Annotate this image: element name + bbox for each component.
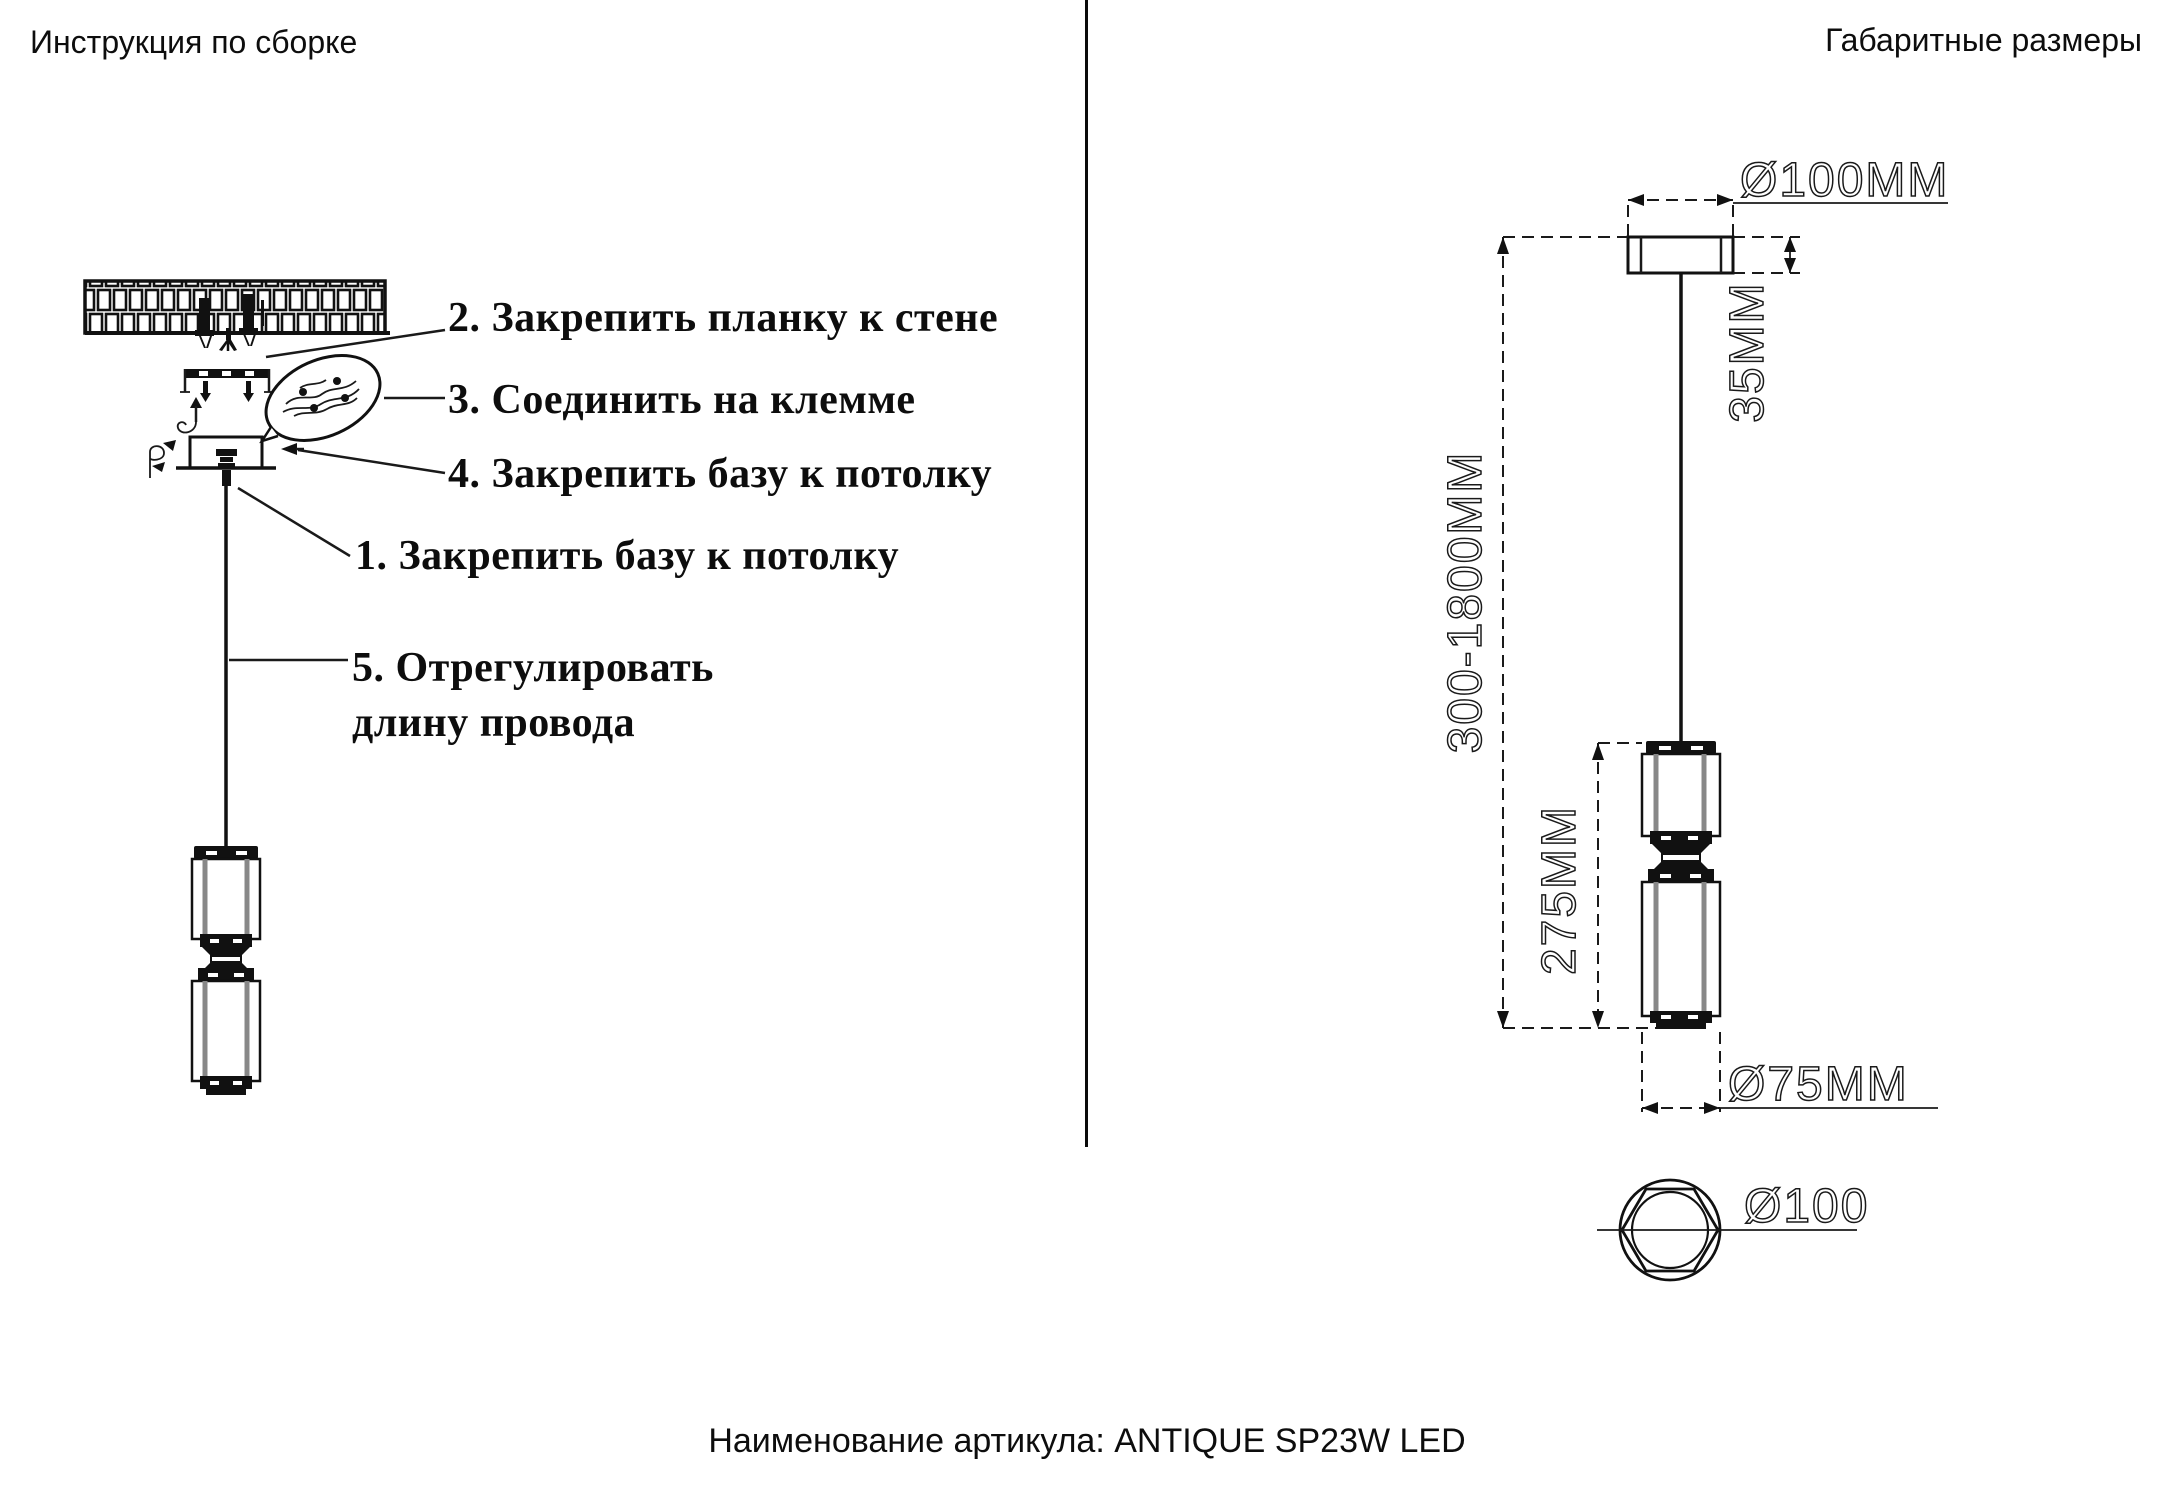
step-5-label-line1: 5. Отрегулировать [352, 644, 714, 692]
shade-height-label: 275MM [1533, 805, 1586, 975]
canopy-top-view: Ø100 [1597, 1180, 1869, 1280]
step-1-label: 1. Закрепить базу к потолку [355, 532, 899, 580]
left-arrow-icon [281, 443, 304, 455]
dim-shade-diameter: Ø75MM [1642, 1032, 1938, 1114]
ceiling-base [176, 437, 276, 486]
dim-shade-height: 275MM [1533, 743, 1642, 1028]
canopy-diameter-label: Ø100MM [1740, 154, 1949, 207]
rotate-arrow-icon [150, 440, 176, 478]
step-4-label: 4. Закрепить базу к потолку [448, 450, 992, 498]
pendant-lamp [192, 846, 260, 1095]
top-view-diameter-label: Ø100 [1744, 1180, 1869, 1233]
suspension-range-label: 300-1800MM [1439, 451, 1492, 754]
instruction-sheet: Инструкция по сборке Габаритные размеры [0, 0, 2174, 1500]
step-2-label: 2. Закрепить планку к стене [448, 294, 998, 342]
canopy-side-view [1628, 237, 1733, 273]
step-3-label: 3. Соединить на клемме [448, 376, 916, 424]
shade-diameter-label: Ø75MM [1728, 1058, 1909, 1111]
canopy-height-label: 35MM [1721, 281, 1774, 422]
step-5-label-line2: длину провода [352, 699, 635, 747]
diagram-canvas: Ø100MM 35MM 300-1800MM [0, 0, 2174, 1500]
up-arrow-icon [178, 397, 202, 433]
article-caption: Наименование артикула: ANTIQUE SP23W LED [0, 1422, 2174, 1461]
brick-wall [85, 281, 390, 333]
pendant-lamp-dim [1642, 741, 1720, 1029]
mounting-bracket [180, 369, 274, 402]
dim-canopy-diameter: Ø100MM [1628, 154, 1949, 237]
dimension-drawing: Ø100MM 35MM 300-1800MM [1439, 154, 1949, 1280]
